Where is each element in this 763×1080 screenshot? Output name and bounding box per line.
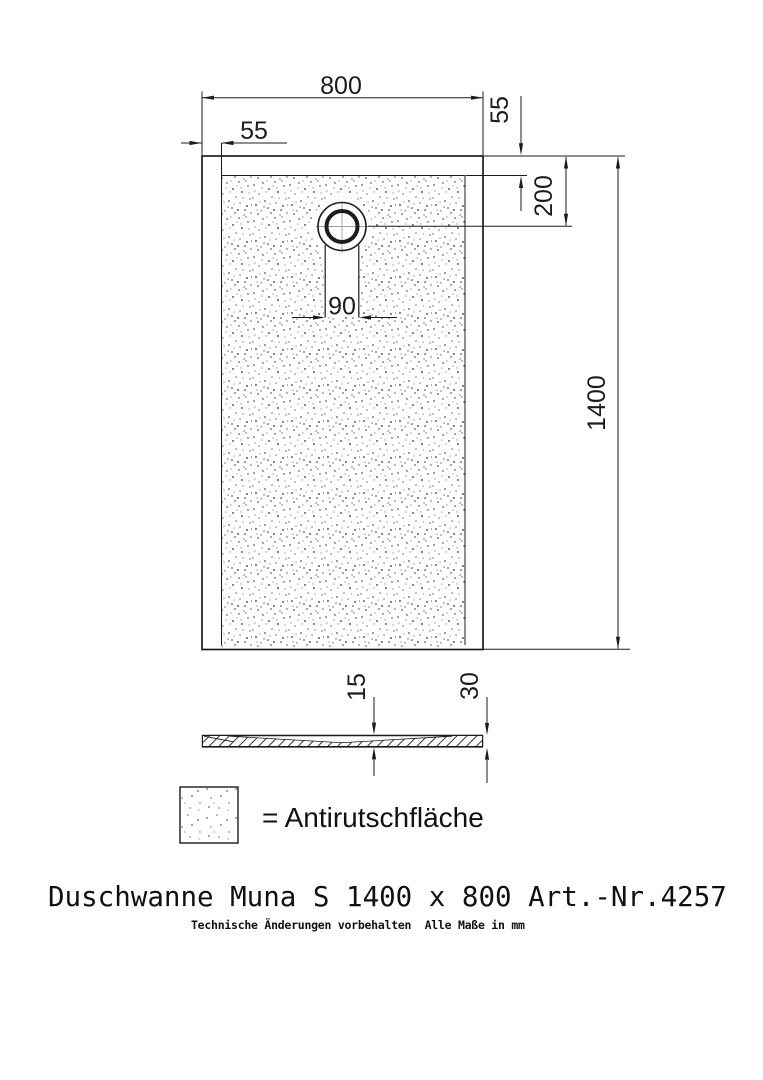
dim-label-90: 90 (328, 293, 356, 321)
section-view (202, 735, 483, 747)
dimension-1400-length: 1400 (484, 156, 630, 649)
legend: = Antirutschfläche (180, 787, 484, 843)
drawing-canvas: 800 55 55 200 90 1400 (0, 0, 763, 1080)
plan-view (202, 156, 483, 650)
dimension-55-inset-top: 55 (466, 96, 527, 211)
title-block: Duschwanne Muna S 1400 x 800 Art.-Nr.425… (48, 881, 727, 932)
dimension-15-floor-thickness: 15 (343, 673, 376, 776)
dim-label-800: 800 (320, 72, 362, 100)
technical-drawing-page: 800 55 55 200 90 1400 (0, 0, 763, 1080)
drawing-title: Duschwanne Muna S 1400 x 800 Art.-Nr.425… (48, 881, 727, 913)
arrowhead-right (471, 96, 483, 100)
dim-label-200: 200 (530, 175, 558, 217)
legend-swatch (180, 787, 238, 843)
legend-label: = Antirutschfläche (262, 802, 484, 833)
dim-label-15: 15 (343, 673, 371, 701)
dim-label-55-left: 55 (240, 117, 268, 145)
dimension-30-edge-height: 30 (456, 672, 489, 783)
dim-label-1400: 1400 (583, 375, 611, 431)
arrowhead-left (202, 96, 214, 100)
dim-label-30: 30 (456, 672, 484, 700)
dimension-55-inset-left: 55 (181, 117, 287, 176)
drawing-note: Technische Änderungen vorbehalten Alle M… (191, 917, 525, 932)
dim-label-55-top: 55 (486, 96, 514, 124)
